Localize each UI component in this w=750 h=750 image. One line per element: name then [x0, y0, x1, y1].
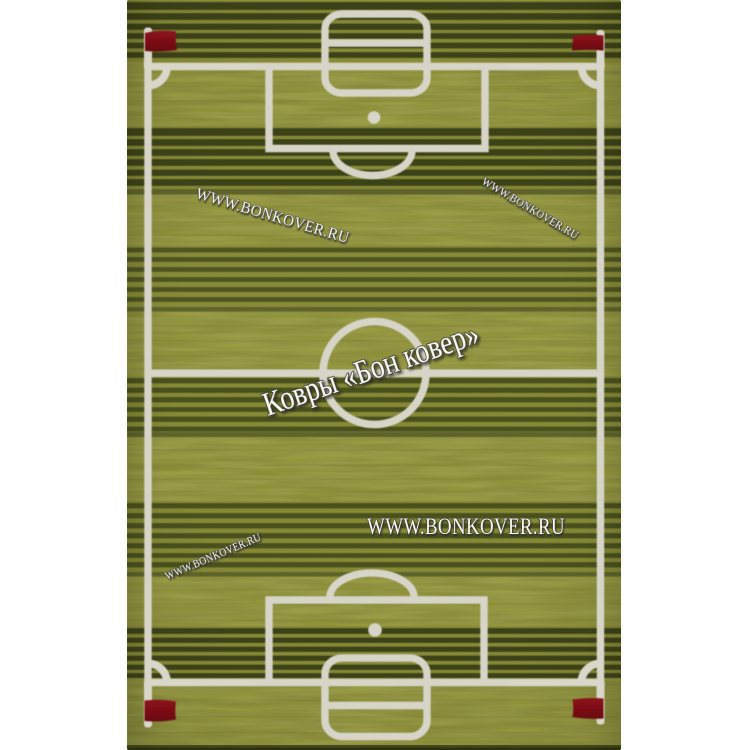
svg-text:WWW.BONKOVER.RU: WWW.BONKOVER.RU — [367, 514, 565, 540]
